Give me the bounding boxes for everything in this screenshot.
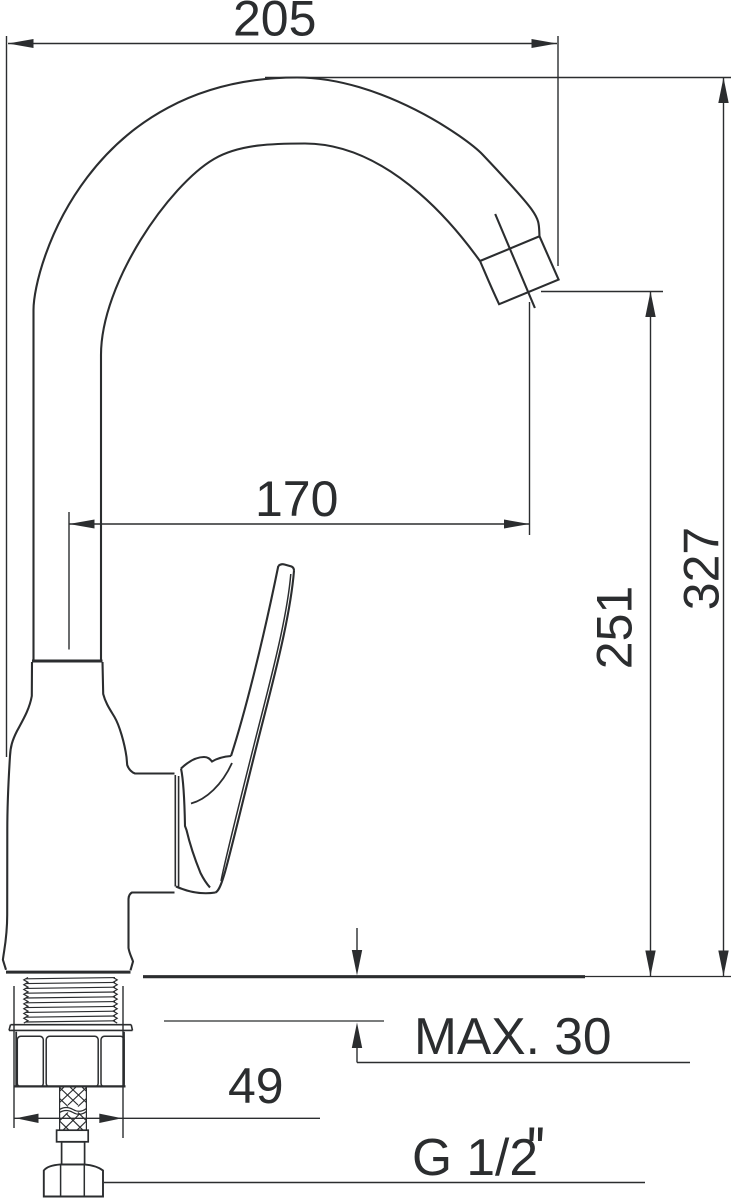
svg-text:G 1/2: G 1/2 <box>412 1128 538 1186</box>
svg-text:170: 170 <box>255 471 338 527</box>
svg-text:205: 205 <box>233 0 316 47</box>
svg-text:327: 327 <box>674 527 730 610</box>
svg-text:MAX. 30: MAX. 30 <box>414 1007 612 1065</box>
svg-text:49: 49 <box>228 1058 284 1114</box>
svg-text:251: 251 <box>587 586 643 669</box>
